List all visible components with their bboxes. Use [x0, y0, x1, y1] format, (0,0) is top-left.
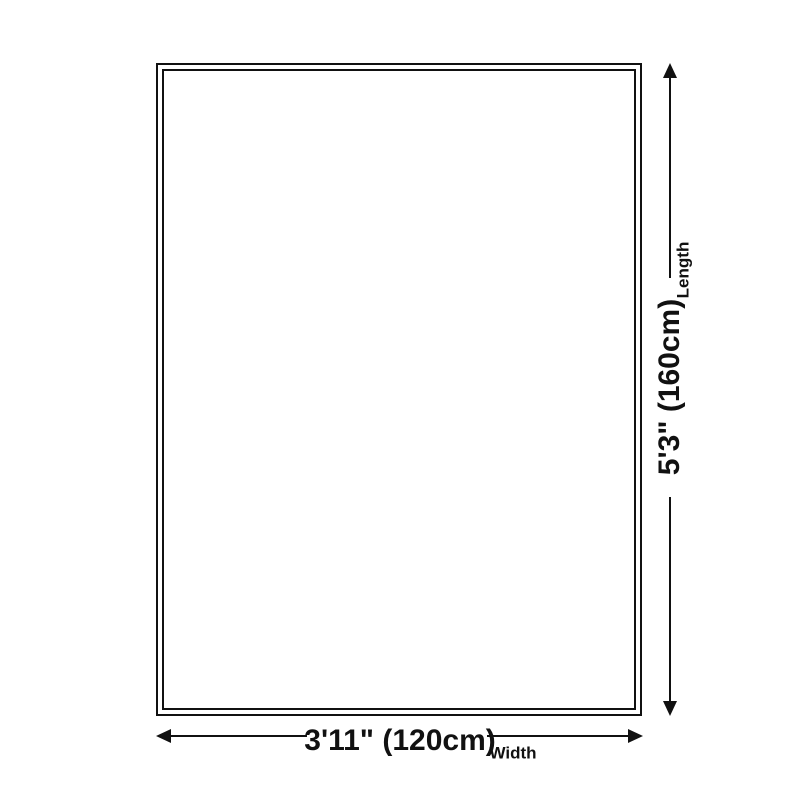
rug-outline-outer [156, 63, 642, 716]
length-value: 5'3" (160cm) [655, 299, 685, 475]
rug-outline-inner [162, 69, 636, 710]
width-label: Width [489, 745, 536, 762]
length-dimension-line-bottom [669, 497, 671, 703]
size-diagram: 5'3" (160cm) Length 3'11" (120cm) Width [0, 0, 800, 800]
width-value: 3'11" (120cm) [304, 726, 495, 756]
arrow-down-icon [663, 701, 677, 716]
length-label: Length [675, 242, 692, 299]
width-dimension-line-right [487, 735, 629, 737]
arrow-right-icon [628, 729, 643, 743]
width-dimension-line-left [169, 735, 307, 737]
length-dimension-line-top [669, 76, 671, 278]
